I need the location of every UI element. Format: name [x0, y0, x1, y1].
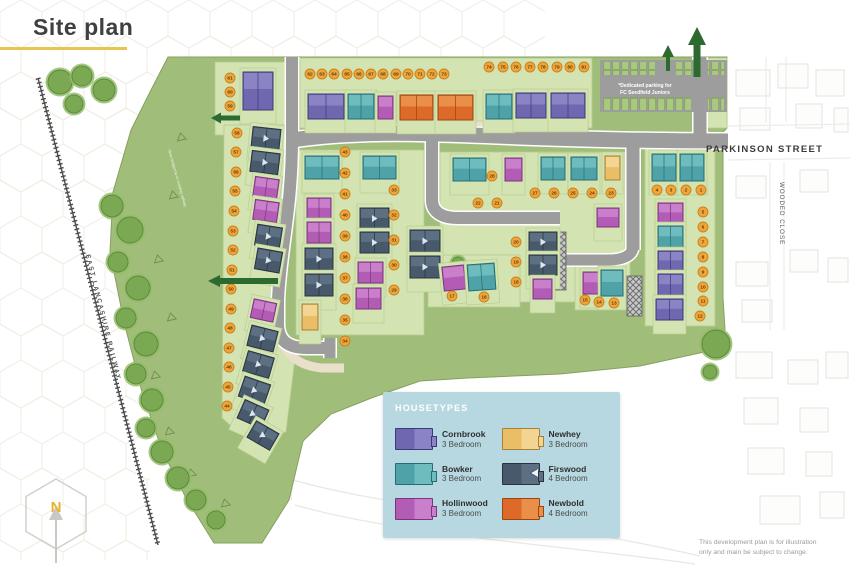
- svg-text:21: 21: [494, 201, 500, 207]
- svg-text:81: 81: [581, 65, 587, 71]
- plot-number: 11: [698, 296, 708, 306]
- legend-swatch-cornbrook: [395, 428, 433, 450]
- legend-swatch-hollinwood: [395, 498, 433, 520]
- housetype-name: Bowker: [442, 464, 481, 475]
- house-nb: [397, 91, 436, 134]
- tree: [700, 328, 733, 361]
- plot-number: 24: [587, 188, 597, 198]
- plot-number: 64: [329, 69, 339, 79]
- house-bw: [483, 90, 515, 133]
- legend-swatch-bowker: [395, 463, 433, 485]
- svg-text:13: 13: [611, 301, 617, 307]
- svg-text:30: 30: [391, 263, 397, 269]
- plot-number: 19: [511, 257, 521, 267]
- garage-tab: [538, 506, 544, 517]
- svg-text:67: 67: [368, 72, 374, 78]
- house-hw: [375, 92, 396, 133]
- plot-number: 70: [403, 69, 413, 79]
- svg-text:77: 77: [527, 65, 533, 71]
- svg-text:39: 39: [342, 234, 348, 240]
- svg-text:63: 63: [319, 72, 325, 78]
- legend-swatch-newhey: [502, 428, 540, 450]
- svg-text:44: 44: [224, 404, 230, 410]
- plot-number: 7: [698, 237, 708, 247]
- title-accent-rule: [0, 47, 127, 50]
- svg-text:57: 57: [233, 150, 239, 156]
- plot-number: 66: [354, 69, 364, 79]
- plot-number: 49: [226, 304, 236, 314]
- plot-number: 52: [228, 245, 238, 255]
- svg-text:72: 72: [429, 72, 435, 78]
- disclaimer-line2: only and main be subject to change.: [699, 548, 849, 558]
- parking-note-line2: FC Seedfield Juniors: [620, 90, 670, 96]
- plot-number: 47: [224, 343, 234, 353]
- plot-number: 3: [666, 185, 676, 195]
- svg-text:22: 22: [475, 201, 481, 207]
- housetype-bedrooms: 3 Bedroom: [442, 509, 488, 519]
- plot-number: 54: [229, 206, 239, 216]
- svg-text:36: 36: [342, 297, 348, 303]
- plot-number: 69: [391, 69, 401, 79]
- tree: [63, 93, 86, 116]
- housetype-name: Firswood: [549, 464, 588, 475]
- compass-north-letter: N: [51, 499, 62, 516]
- garage-tab: [431, 506, 437, 517]
- plot-number: 67: [366, 69, 376, 79]
- svg-text:55: 55: [232, 189, 238, 195]
- svg-text:50: 50: [228, 287, 234, 293]
- parking-note-line1: *Dedicated parking for: [618, 83, 671, 89]
- plot-number: 72: [427, 69, 437, 79]
- svg-text:73: 73: [441, 72, 447, 78]
- svg-text:64: 64: [331, 72, 337, 78]
- plot-number: 78: [538, 62, 548, 72]
- svg-text:34: 34: [342, 339, 348, 345]
- plot-number: 77: [525, 62, 535, 72]
- svg-text:31: 31: [391, 238, 397, 244]
- plot-number: 41: [340, 189, 350, 199]
- plot-number: 39: [340, 231, 350, 241]
- svg-text:60: 60: [227, 90, 233, 96]
- svg-text:70: 70: [405, 72, 411, 78]
- svg-text:42: 42: [342, 171, 348, 177]
- garage-tab: [538, 436, 544, 447]
- house-cb: [548, 89, 588, 132]
- plot-number: 6: [698, 222, 708, 232]
- plot-number: 43: [340, 147, 350, 157]
- plot-number: 2: [681, 185, 691, 195]
- legend-item-cornbrook: Cornbrook3 Bedroom: [395, 422, 502, 457]
- tree: [46, 68, 75, 97]
- svg-text:80: 80: [567, 65, 573, 71]
- housetype-bedrooms: 4 Bedroom: [549, 509, 588, 519]
- svg-text:16: 16: [481, 295, 487, 301]
- housetype-name: Cornbrook: [442, 429, 485, 440]
- house-bw: [450, 154, 489, 195]
- plot-number: 20: [511, 237, 521, 247]
- legend-item-newhey: Newhey3 Bedroom: [502, 422, 609, 457]
- plot-number: 33: [389, 185, 399, 195]
- legend-swatch-firswood: [502, 463, 540, 485]
- plot-number: 15: [580, 295, 590, 305]
- tree: [106, 250, 131, 275]
- housetype-name: Hollinwood: [442, 498, 488, 509]
- plot-number: 56: [231, 167, 241, 177]
- plot-number: 40: [340, 210, 350, 220]
- svg-text:68: 68: [380, 72, 386, 78]
- svg-text:58: 58: [234, 131, 240, 137]
- tree: [91, 77, 118, 104]
- plot-number: 10: [698, 282, 708, 292]
- dedicated-parking-court: *Dedicated parking for FC Seedfield Juni…: [600, 60, 727, 112]
- housetype-name: Newbold: [549, 498, 588, 509]
- svg-text:4: 4: [656, 188, 659, 194]
- plot-number: 61: [225, 73, 235, 83]
- tree: [99, 193, 126, 220]
- firswood-arrow-icon: [531, 469, 538, 477]
- plot-number: 12: [695, 311, 705, 321]
- plot-number: 60: [225, 87, 235, 97]
- plot-number: 65: [342, 69, 352, 79]
- svg-text:28: 28: [489, 174, 495, 180]
- svg-text:23: 23: [608, 191, 614, 197]
- svg-text:37: 37: [342, 276, 348, 282]
- svg-text:12: 12: [697, 314, 703, 320]
- svg-text:41: 41: [342, 192, 348, 198]
- house-cb: [240, 68, 276, 124]
- housetype-bedrooms: 3 Bedroom: [549, 440, 588, 450]
- legend-title: HOUSETYPES: [395, 403, 608, 413]
- plot-number: 51: [227, 265, 237, 275]
- plot-number: 68: [378, 69, 388, 79]
- svg-text:25: 25: [570, 191, 576, 197]
- plot-number: 27: [530, 188, 540, 198]
- plot-number: 53: [228, 226, 238, 236]
- svg-text:46: 46: [226, 365, 232, 371]
- housetype-bedrooms: 4 Bedroom: [549, 474, 588, 484]
- plot-number: 22: [473, 198, 483, 208]
- house-nh: [299, 300, 321, 344]
- svg-text:59: 59: [227, 104, 233, 110]
- plot-number: 16: [479, 292, 489, 302]
- svg-text:40: 40: [342, 213, 348, 219]
- site-plan-page: *Dedicated parking for FC Seedfield Juni…: [0, 0, 850, 567]
- house-cb: [305, 90, 347, 133]
- house-cb: [513, 89, 549, 132]
- house-bw: [302, 152, 342, 193]
- page-title: Site plan: [33, 14, 300, 41]
- plot-number: 81: [579, 62, 589, 72]
- plot-number: 44: [222, 401, 232, 411]
- plot-number: 18: [511, 277, 521, 287]
- plot-number: 57: [231, 147, 241, 157]
- tree: [149, 439, 176, 466]
- svg-text:1: 1: [700, 188, 703, 194]
- svg-text:38: 38: [342, 255, 348, 261]
- svg-text:24: 24: [589, 191, 595, 197]
- garage-tab: [431, 471, 437, 482]
- plot-number: 9: [698, 267, 708, 277]
- plot-number: 8: [698, 252, 708, 262]
- svg-text:11: 11: [700, 299, 705, 305]
- plot-number: 5: [698, 207, 708, 217]
- plot-number: 21: [492, 198, 502, 208]
- tree: [70, 64, 95, 89]
- house-cb: [653, 295, 686, 334]
- plot-number: 62: [305, 69, 315, 79]
- header: Site plan: [0, 0, 300, 41]
- plot-number: 58: [232, 128, 242, 138]
- plot-number: 38: [340, 252, 350, 262]
- plot-number: 75: [498, 62, 508, 72]
- tree: [205, 509, 228, 532]
- svg-text:66: 66: [356, 72, 362, 78]
- plot-number: 13: [609, 298, 619, 308]
- svg-text:18: 18: [513, 280, 519, 286]
- disclaimer-line1: This development plan is for illustratio…: [699, 538, 849, 548]
- plot-number: 26: [549, 188, 559, 198]
- garage-tab: [538, 471, 544, 482]
- disclaimer: This development plan is for illustratio…: [699, 538, 849, 558]
- plot-number: 34: [340, 336, 350, 346]
- tree: [132, 330, 161, 359]
- svg-text:76: 76: [513, 65, 519, 71]
- svg-text:5: 5: [702, 210, 705, 216]
- tree: [124, 274, 153, 303]
- plot-number: 76: [511, 62, 521, 72]
- svg-text:54: 54: [231, 209, 237, 215]
- plot-number: 36: [340, 294, 350, 304]
- plot-number: 17: [447, 291, 457, 301]
- plot-number: 42: [340, 168, 350, 178]
- housetypes-legend: HOUSETYPES Cornbrook3 Bedroom Bowker3 Be…: [383, 392, 620, 538]
- parkinson-street-label: PARKINSON STREET: [706, 144, 823, 155]
- tree: [114, 306, 139, 331]
- svg-text:33: 33: [391, 188, 397, 194]
- tree: [124, 362, 149, 387]
- plot-number: 50: [226, 284, 236, 294]
- plot-number: 14: [594, 297, 604, 307]
- svg-text:56: 56: [233, 170, 239, 176]
- svg-text:3: 3: [670, 188, 673, 194]
- svg-text:43: 43: [342, 150, 348, 156]
- legend-swatch-newbold: [502, 498, 540, 520]
- svg-text:15: 15: [582, 298, 588, 304]
- svg-text:20: 20: [513, 240, 519, 246]
- svg-text:14: 14: [596, 300, 602, 306]
- svg-text:45: 45: [225, 385, 231, 391]
- plot-number: 1: [696, 185, 706, 195]
- plot-number: 28: [487, 171, 497, 181]
- house-hw: [502, 154, 525, 195]
- garage-tab: [431, 436, 437, 447]
- svg-text:74: 74: [486, 65, 492, 71]
- svg-text:78: 78: [540, 65, 546, 71]
- house-fw: [407, 252, 443, 292]
- plot-number: 59: [225, 101, 235, 111]
- svg-text:48: 48: [227, 326, 233, 332]
- plot-number: 46: [224, 362, 234, 372]
- svg-text:29: 29: [391, 288, 397, 294]
- plot-number: 32: [389, 210, 399, 220]
- house-hw: [353, 284, 384, 323]
- svg-text:71: 71: [417, 72, 423, 78]
- svg-text:19: 19: [513, 260, 519, 266]
- house-nh: [602, 152, 623, 194]
- svg-text:10: 10: [700, 285, 706, 291]
- housetype-bedrooms: 3 Bedroom: [442, 440, 485, 450]
- legend-item-bowker: Bowker3 Bedroom: [395, 457, 502, 492]
- tree: [135, 417, 158, 440]
- plot-number: 80: [565, 62, 575, 72]
- svg-text:49: 49: [228, 307, 234, 313]
- svg-text:51: 51: [229, 268, 235, 274]
- plot-number: 4: [652, 185, 662, 195]
- svg-text:32: 32: [391, 213, 397, 219]
- svg-text:61: 61: [227, 76, 233, 82]
- plot-number: 23: [606, 188, 616, 198]
- svg-text:53: 53: [230, 229, 236, 235]
- legend-item-newbold: Newbold4 Bedroom: [502, 491, 609, 526]
- tree: [701, 363, 720, 382]
- plot-number: 79: [552, 62, 562, 72]
- svg-text:52: 52: [230, 248, 236, 254]
- plot-number: 73: [439, 69, 449, 79]
- plot-number: 30: [389, 260, 399, 270]
- housetype-name: Newhey: [549, 429, 588, 440]
- svg-text:7: 7: [702, 240, 705, 246]
- plot-number: 74: [484, 62, 494, 72]
- svg-text:65: 65: [344, 72, 350, 78]
- legend-grid: Cornbrook3 Bedroom Bowker3 Bedroom Holli…: [395, 422, 608, 526]
- svg-text:26: 26: [551, 191, 557, 197]
- plot-number: 31: [389, 235, 399, 245]
- plot-number: 55: [230, 186, 240, 196]
- plot-number: 25: [568, 188, 578, 198]
- tree: [139, 387, 166, 414]
- svg-text:2: 2: [685, 188, 688, 194]
- svg-text:8: 8: [702, 255, 705, 261]
- house-bw: [345, 90, 377, 133]
- svg-text:35: 35: [342, 318, 348, 324]
- tree: [115, 215, 146, 246]
- svg-text:27: 27: [532, 191, 538, 197]
- svg-text:79: 79: [554, 65, 560, 71]
- svg-text:69: 69: [393, 72, 399, 78]
- svg-text:17: 17: [449, 294, 455, 300]
- house-nb: [435, 91, 476, 134]
- svg-text:9: 9: [702, 270, 705, 276]
- tree: [184, 488, 209, 513]
- house-hw: [594, 204, 622, 241]
- plot-number: 71: [415, 69, 425, 79]
- legend-item-hollinwood: Hollinwood3 Bedroom: [395, 491, 502, 526]
- plot-number: 29: [389, 285, 399, 295]
- svg-text:75: 75: [500, 65, 506, 71]
- plot-number: 45: [223, 382, 233, 392]
- plot-number: 48: [225, 323, 235, 333]
- plot-number: 37: [340, 273, 350, 283]
- housetype-bedrooms: 3 Bedroom: [442, 474, 481, 484]
- svg-text:47: 47: [226, 346, 232, 352]
- wooded-close-label: WOODED CLOSE: [778, 182, 785, 245]
- plot-number: 35: [340, 315, 350, 325]
- svg-text:6: 6: [702, 225, 705, 231]
- plot-number: 63: [317, 69, 327, 79]
- svg-text:62: 62: [307, 72, 313, 78]
- house-hw: [530, 275, 555, 313]
- legend-item-firswood: Firswood4 Bedroom: [502, 457, 609, 492]
- offsite-buildings: [736, 64, 848, 524]
- tree: [165, 465, 192, 492]
